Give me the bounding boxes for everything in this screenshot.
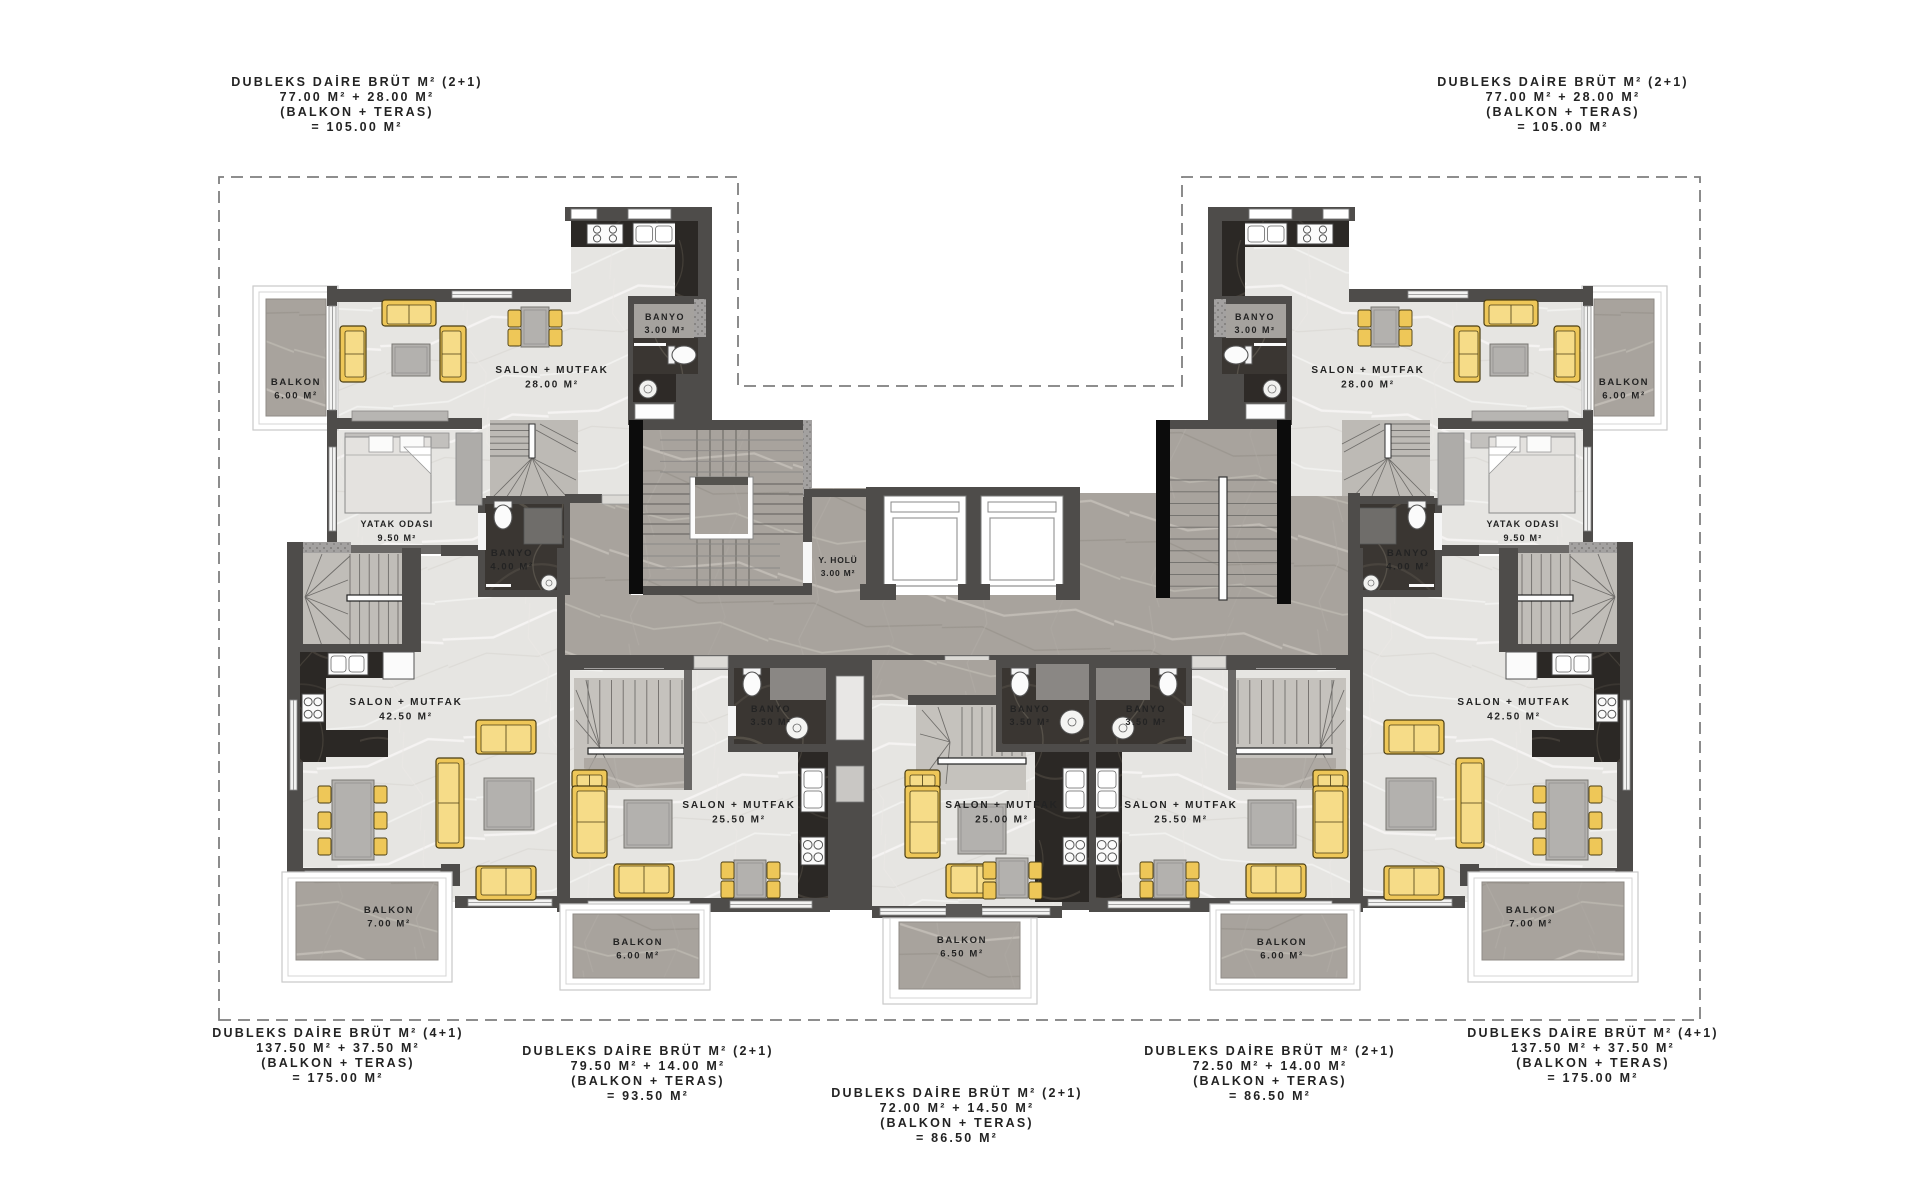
svg-text:137.50 M² + 37.50 M²: 137.50 M² + 37.50 M² [1511, 1041, 1675, 1055]
svg-text:SALON + MUTFAK: SALON + MUTFAK [1124, 800, 1237, 811]
svg-text:SALON + MUTFAK: SALON + MUTFAK [495, 365, 608, 376]
svg-text:6.00 M²: 6.00 M² [1260, 951, 1303, 962]
svg-text:DUBLEKS DAİRE BRÜT M² (2+1): DUBLEKS DAİRE BRÜT M² (2+1) [1144, 1043, 1395, 1058]
svg-text:DUBLEKS DAİRE BRÜT M² (4+1): DUBLEKS DAİRE BRÜT M² (4+1) [212, 1025, 463, 1040]
svg-text:SALON + MUTFAK: SALON + MUTFAK [349, 697, 462, 708]
svg-text:(BALKON + TERAS): (BALKON + TERAS) [880, 1116, 1034, 1130]
svg-text:72.00 M² + 14.50 M²: 72.00 M² + 14.50 M² [880, 1101, 1035, 1115]
svg-text:137.50 M² + 37.50 M²: 137.50 M² + 37.50 M² [256, 1041, 420, 1055]
svg-text:BANYO: BANYO [1010, 704, 1050, 714]
svg-text:= 175.00 M²: = 175.00 M² [1547, 1071, 1638, 1085]
svg-text:3.50 M²: 3.50 M² [1009, 717, 1050, 727]
svg-text:79.50 M² + 14.00 M²: 79.50 M² + 14.00 M² [571, 1059, 726, 1073]
svg-text:BALKON: BALKON [613, 937, 663, 948]
svg-text:BANYO: BANYO [751, 704, 791, 714]
svg-text:SALON + MUTFAK: SALON + MUTFAK [682, 800, 795, 811]
svg-text:Y. HOLÜ: Y. HOLÜ [818, 555, 857, 565]
svg-text:9.50 M²: 9.50 M² [1504, 533, 1543, 543]
svg-text:77.00 M² + 28.00 M²: 77.00 M² + 28.00 M² [1486, 90, 1641, 104]
svg-text:7.00 M²: 7.00 M² [1509, 919, 1552, 930]
svg-text:= 93.50 M²: = 93.50 M² [607, 1089, 689, 1103]
svg-text:42.50 M²: 42.50 M² [1487, 712, 1541, 723]
svg-text:BALKON: BALKON [1506, 905, 1556, 916]
svg-text:SALON + MUTFAK: SALON + MUTFAK [1311, 365, 1424, 376]
svg-text:4.00 M²: 4.00 M² [490, 562, 533, 573]
svg-text:YATAK ODASI: YATAK ODASI [1486, 519, 1559, 529]
svg-text:(BALKON + TERAS): (BALKON + TERAS) [571, 1074, 725, 1088]
svg-text:= 86.50 M²: = 86.50 M² [916, 1131, 998, 1145]
svg-text:= 105.00 M²: = 105.00 M² [1517, 120, 1608, 134]
svg-text:3.00 M²: 3.00 M² [821, 568, 855, 578]
svg-text:SALON + MUTFAK: SALON + MUTFAK [945, 800, 1058, 811]
svg-text:BALKON: BALKON [364, 905, 414, 916]
svg-text:6.00 M²: 6.00 M² [274, 391, 317, 402]
svg-text:BALKON: BALKON [1257, 937, 1307, 948]
svg-text:72.50 M² + 14.00 M²: 72.50 M² + 14.00 M² [1193, 1059, 1348, 1073]
svg-text:DUBLEKS DAİRE BRÜT M² (2+1): DUBLEKS DAİRE BRÜT M² (2+1) [231, 74, 482, 89]
svg-text:BANYO: BANYO [1126, 704, 1166, 714]
svg-text:(BALKON + TERAS): (BALKON + TERAS) [1193, 1074, 1347, 1088]
svg-text:4.00 M²: 4.00 M² [1386, 562, 1429, 573]
svg-text:= 175.00 M²: = 175.00 M² [292, 1071, 383, 1085]
svg-text:SALON + MUTFAK: SALON + MUTFAK [1457, 697, 1570, 708]
svg-text:25.50 M²: 25.50 M² [712, 815, 766, 826]
svg-text:= 86.50 M²: = 86.50 M² [1229, 1089, 1311, 1103]
svg-text:6.00 M²: 6.00 M² [1602, 391, 1645, 402]
svg-text:BANYO: BANYO [1387, 548, 1429, 559]
svg-text:6.00 M²: 6.00 M² [616, 951, 659, 962]
svg-text:3.00 M²: 3.00 M² [1234, 325, 1275, 335]
svg-text:BALKON: BALKON [1599, 377, 1649, 388]
svg-text:3.50 M²: 3.50 M² [1125, 717, 1166, 727]
svg-text:YATAK ODASI: YATAK ODASI [360, 519, 433, 529]
svg-text:DUBLEKS DAİRE BRÜT M² (2+1): DUBLEKS DAİRE BRÜT M² (2+1) [522, 1043, 773, 1058]
svg-text:(BALKON + TERAS): (BALKON + TERAS) [280, 105, 434, 119]
svg-text:(BALKON + TERAS): (BALKON + TERAS) [261, 1056, 415, 1070]
svg-text:DUBLEKS DAİRE BRÜT M² (2+1): DUBLEKS DAİRE BRÜT M² (2+1) [831, 1085, 1082, 1100]
svg-text:25.50 M²: 25.50 M² [1154, 815, 1208, 826]
svg-text:3.00 M²: 3.00 M² [644, 325, 685, 335]
svg-text:42.50 M²: 42.50 M² [379, 712, 433, 723]
svg-text:(BALKON + TERAS): (BALKON + TERAS) [1486, 105, 1640, 119]
svg-text:9.50 M²: 9.50 M² [378, 533, 417, 543]
svg-text:DUBLEKS DAİRE BRÜT M² (4+1): DUBLEKS DAİRE BRÜT M² (4+1) [1467, 1025, 1718, 1040]
svg-text:= 105.00 M²: = 105.00 M² [311, 120, 402, 134]
svg-text:77.00 M² + 28.00 M²: 77.00 M² + 28.00 M² [280, 90, 435, 104]
svg-text:BANYO: BANYO [491, 548, 533, 559]
svg-text:BANYO: BANYO [645, 312, 685, 322]
svg-text:3.50 M²: 3.50 M² [750, 717, 791, 727]
svg-text:(BALKON + TERAS): (BALKON + TERAS) [1516, 1056, 1670, 1070]
svg-text:DUBLEKS DAİRE BRÜT M² (2+1): DUBLEKS DAİRE BRÜT M² (2+1) [1437, 74, 1688, 89]
svg-text:BANYO: BANYO [1235, 312, 1275, 322]
svg-text:7.00 M²: 7.00 M² [367, 919, 410, 930]
svg-text:25.00 M²: 25.00 M² [975, 815, 1029, 826]
svg-text:BALKON: BALKON [937, 935, 987, 946]
svg-text:BALKON: BALKON [271, 377, 321, 388]
svg-text:28.00 M²: 28.00 M² [525, 380, 579, 391]
svg-text:28.00 M²: 28.00 M² [1341, 380, 1395, 391]
svg-text:6.50 M²: 6.50 M² [940, 949, 983, 960]
